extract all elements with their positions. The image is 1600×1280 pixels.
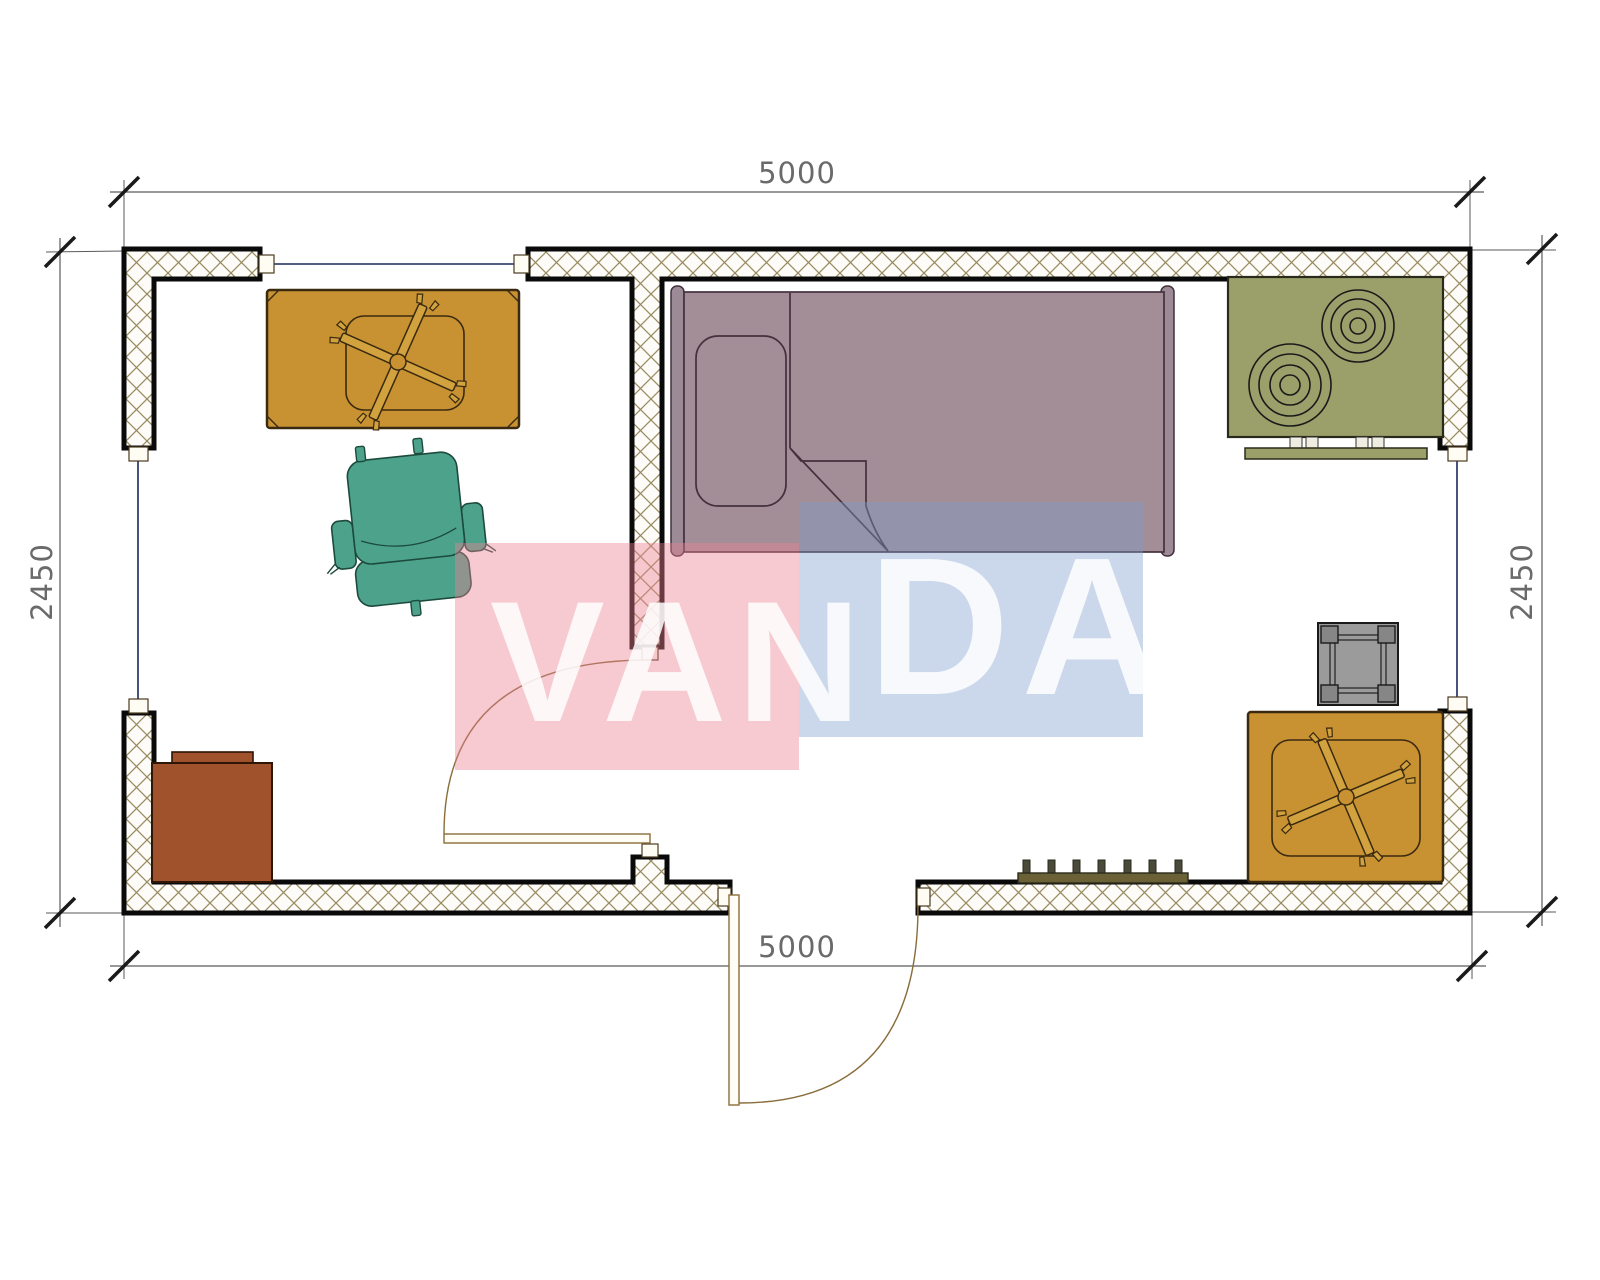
stove-feet — [1290, 437, 1384, 448]
door-frame — [642, 844, 658, 857]
window-top — [259, 255, 529, 273]
window-frame — [1448, 697, 1467, 711]
radiator — [1018, 860, 1188, 883]
window-right — [1448, 447, 1467, 711]
exterior-door — [718, 888, 930, 1105]
watermark: VAN DA — [455, 502, 1175, 770]
floor-plan-canvas: 5000 5000 2450 2450 — [0, 0, 1600, 1280]
left-dimension-label: 2450 — [25, 543, 59, 621]
right-dimension-label: 2450 — [1505, 543, 1539, 621]
left-dimension: 2450 — [25, 237, 124, 928]
stove — [1228, 277, 1443, 459]
top-dimension: 5000 — [109, 156, 1485, 249]
right-dimension: 2450 — [1470, 234, 1557, 927]
window-frame — [259, 255, 274, 273]
table-top-left — [267, 267, 519, 457]
window-frame — [514, 255, 529, 273]
window-frame — [129, 699, 148, 713]
window-frame — [129, 447, 148, 461]
watermark-text-right: DA — [868, 517, 1175, 736]
window-left — [129, 447, 148, 713]
watermark-text-left: VAN — [490, 566, 871, 758]
wall-top-left-corner — [124, 249, 260, 448]
stool — [1318, 623, 1398, 705]
door-leaf — [729, 895, 739, 1105]
kitchen-rail — [1245, 448, 1427, 459]
door-leaf — [444, 834, 650, 843]
table-bottom-right — [1248, 703, 1443, 892]
top-dimension-label: 5000 — [758, 156, 836, 190]
bottom-dimension-label: 5000 — [758, 930, 836, 964]
bottom-dimension: 5000 — [109, 912, 1487, 981]
window-frame — [1448, 447, 1467, 461]
cabinet — [152, 752, 272, 882]
door-frame — [917, 888, 930, 906]
floor-plan: 5000 5000 2450 2450 — [0, 0, 1600, 1280]
